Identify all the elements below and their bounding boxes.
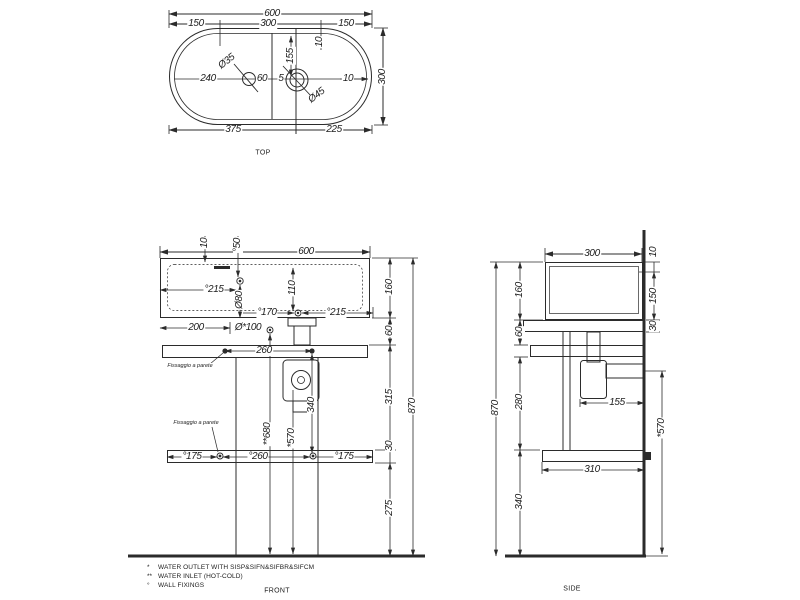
wall-bracket: [644, 452, 651, 460]
dimension-label: 870: [408, 397, 418, 415]
dimension-label: °175: [333, 452, 354, 462]
footnote-marker: *: [147, 564, 158, 571]
upper-shelf-side: [524, 321, 644, 332]
side-view-title: SIDE: [563, 586, 581, 593]
dimension-label: 375: [224, 125, 242, 135]
dimension-label: 280: [515, 393, 525, 411]
front-view-linework: [128, 236, 425, 556]
dimension-label: 160: [515, 281, 525, 299]
dimension-label: °175: [181, 452, 202, 462]
siphon-trap-front: [283, 360, 319, 401]
dimension-label: Ø80: [235, 290, 245, 310]
dimension-label: 150: [649, 287, 659, 305]
dimension-label: 10: [649, 246, 659, 258]
dimension-label: Fissaggio a parete: [172, 420, 219, 426]
dimension-label: 60: [256, 74, 268, 84]
dimension-label: 315: [385, 388, 395, 406]
footnote-text: WALL FIXINGS: [158, 582, 204, 589]
dimension-label: *570: [287, 428, 297, 449]
dimension-label: °50: [233, 237, 243, 253]
drawing-canvas: [0, 0, 800, 600]
dimension-label: 60: [385, 325, 395, 337]
lower-shelf-side: [543, 451, 644, 462]
dimension-label: °170: [256, 308, 277, 318]
dimension-label: 150: [187, 19, 205, 29]
dimension-label: 240: [199, 74, 217, 84]
dimension-label: 600: [297, 247, 315, 257]
dimension-label: 110: [288, 280, 298, 297]
dimension-label: 150: [337, 19, 355, 29]
footnotes: * WATER OUTLET WITH SISP&SIFN&SIFBR&SIFC…: [147, 564, 314, 591]
dimension-label: °260: [247, 452, 268, 462]
footnote-text: WATER INLET (HOT-COLD): [158, 573, 243, 580]
footnote-marker: **: [147, 573, 158, 580]
footnote-text: WATER OUTLET WITH SISP&SIFN&SIFBR&SIFCM: [158, 564, 314, 571]
top-view-title: TOP: [255, 150, 270, 157]
dimension-label: 155: [286, 47, 296, 65]
dimension-label: 340: [515, 493, 525, 511]
wall-outlet-pipe: [606, 364, 644, 378]
overflow-slot: [214, 266, 230, 269]
dimension-label: Ø*100: [234, 323, 262, 333]
siphon-trap-side: [581, 361, 607, 399]
dimension-label: *570: [657, 418, 667, 439]
dimension-label: 30: [649, 320, 659, 332]
dimension-label: 300: [583, 249, 601, 259]
dimension-label: 60: [515, 326, 525, 338]
footnote-wall-fixings: ° WALL FIXINGS: [147, 582, 314, 591]
dimension-label: 10: [342, 74, 354, 84]
dimension-label: 260: [255, 346, 273, 356]
footnote-water-outlet: * WATER OUTLET WITH SISP&SIFN&SIFBR&SIFC…: [147, 564, 314, 573]
dimension-label: 160: [385, 278, 395, 296]
dimension-label: 340: [307, 396, 317, 414]
dimension-label: °215: [203, 285, 224, 295]
footnote-marker: °: [147, 582, 158, 589]
dimension-label: 300: [259, 19, 277, 29]
dimension-label: °215: [325, 308, 346, 318]
dimension-label: 5: [277, 74, 284, 84]
dimension-label: 10: [200, 237, 210, 249]
dimension-label: 275: [385, 499, 395, 517]
footnote-water-inlet: ** WATER INLET (HOT-COLD): [147, 573, 314, 582]
technical-drawing-page: 60015030015010155Ø3524060510Ø45300375225…: [0, 0, 800, 600]
dimension-label: 225: [325, 125, 343, 135]
dimension-label: 155: [608, 398, 626, 408]
dimension-label: 310: [583, 465, 601, 475]
basin-side: [546, 263, 643, 320]
dimension-label: 200: [187, 323, 205, 333]
dimension-label: 10: [315, 36, 325, 48]
dimension-label: 300: [378, 68, 388, 86]
dimension-label: Fissaggio a parete: [166, 363, 213, 369]
dimension-label: 870: [491, 399, 501, 417]
dimension-label: 30: [385, 440, 395, 452]
dimension-label: **680: [263, 422, 273, 446]
